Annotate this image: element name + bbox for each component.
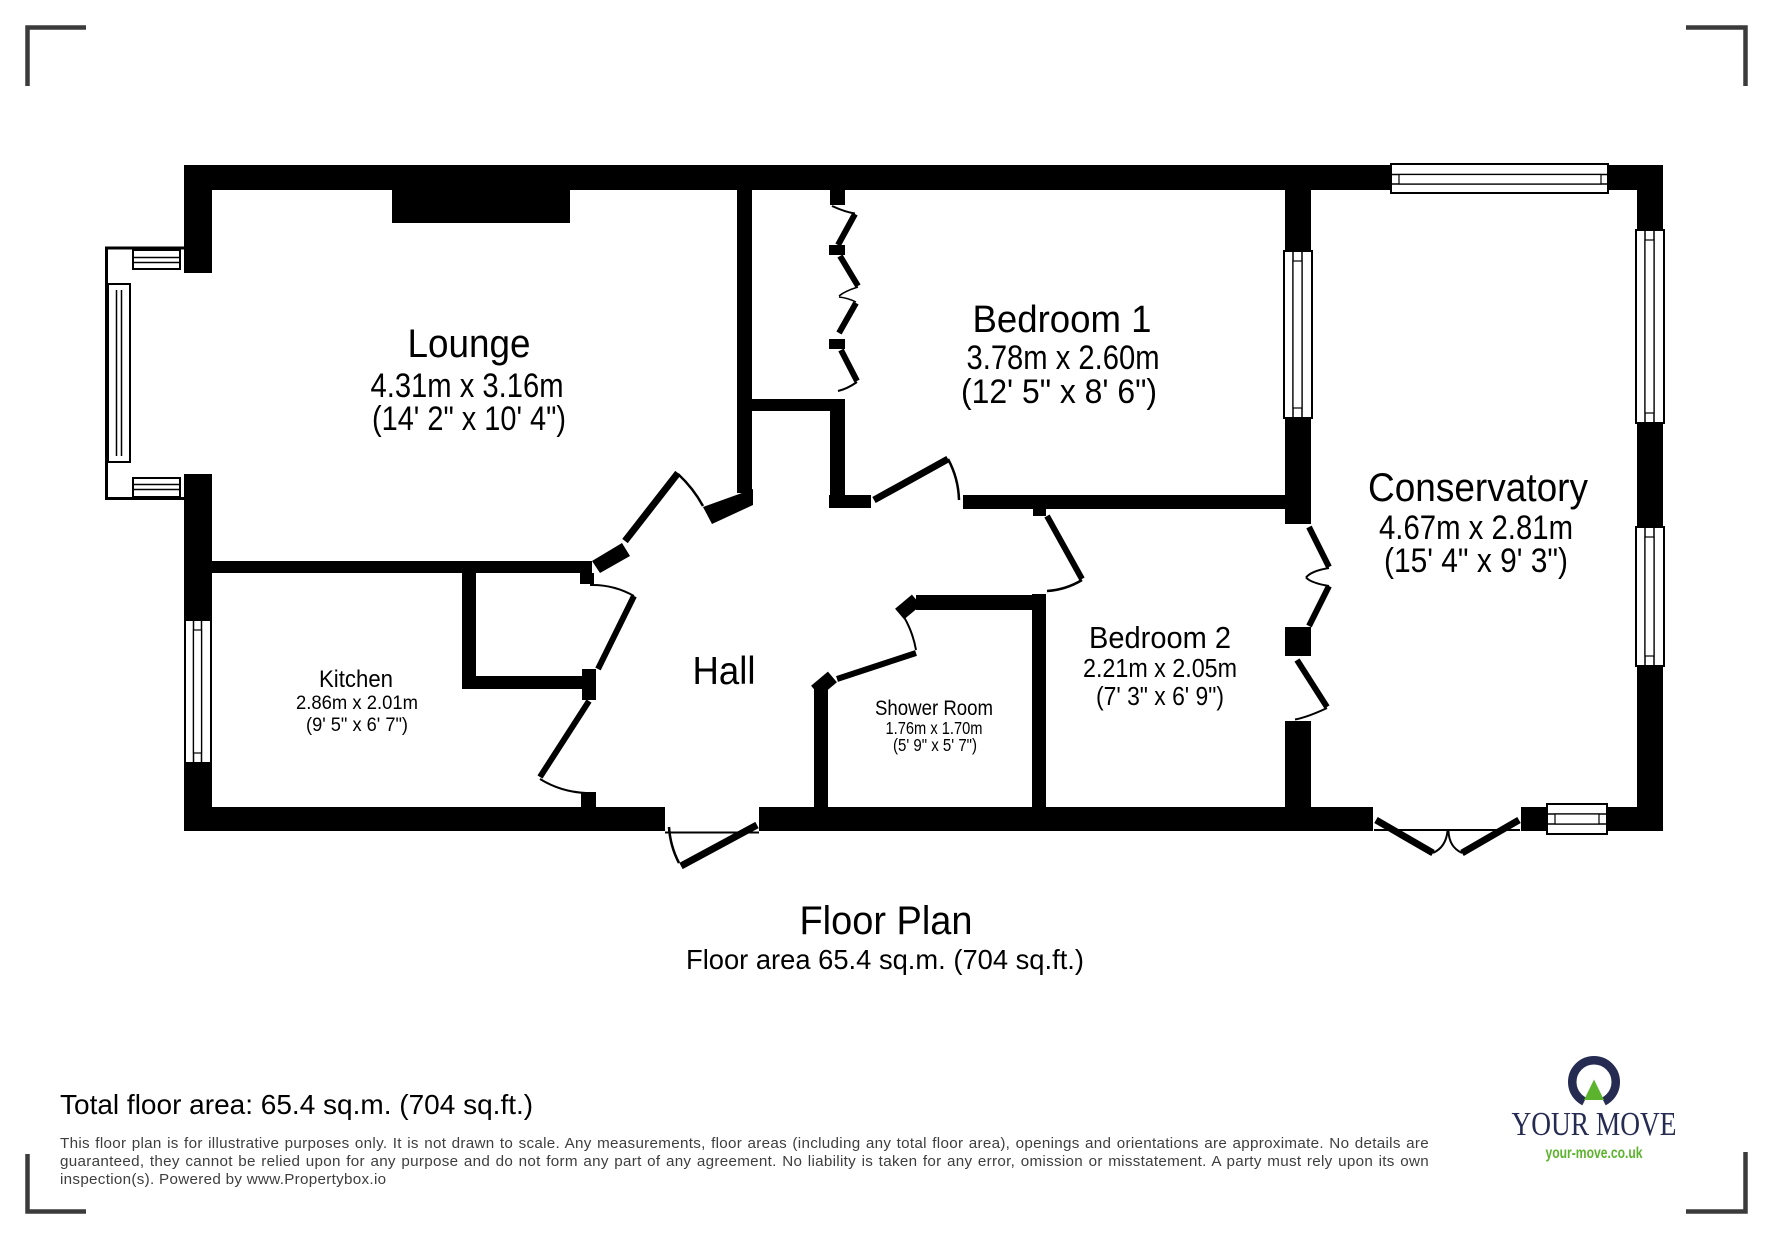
svg-text:Kitchen: Kitchen (319, 666, 393, 693)
svg-text:Shower Room: Shower Room (875, 697, 993, 720)
svg-text:(9' 5" x 6' 7"): (9' 5" x 6' 7") (306, 714, 408, 736)
svg-text:Conservatory: Conservatory (1368, 466, 1588, 510)
svg-text:Hall: Hall (693, 650, 756, 693)
svg-text:(12' 5" x 8' 6"): (12' 5" x 8' 6") (961, 373, 1157, 411)
svg-text:(5' 9" x 5' 7"): (5' 9" x 5' 7") (893, 735, 977, 755)
svg-text:YOUR MOVE: YOUR MOVE (1512, 1106, 1677, 1143)
svg-text:2.21m x 2.05m: 2.21m x 2.05m (1083, 655, 1237, 683)
svg-text:(15' 4" x 9' 3"): (15' 4" x 9' 3") (1384, 542, 1568, 580)
svg-text:(7' 3" x 6' 9"): (7' 3" x 6' 9") (1096, 683, 1224, 711)
svg-text:(14' 2" x 10' 4"): (14' 2" x 10' 4") (372, 400, 566, 438)
svg-text:Bedroom 2: Bedroom 2 (1089, 620, 1231, 655)
svg-text:Floor area 65.4 sq.m. (704 sq.: Floor area 65.4 sq.m. (704 sq.ft.) (686, 944, 1084, 975)
svg-text:2.86m x 2.01m: 2.86m x 2.01m (296, 692, 418, 714)
svg-text:Lounge: Lounge (408, 322, 531, 366)
svg-text:your-move.co.uk: your-move.co.uk (1546, 1145, 1643, 1162)
svg-text:3.78m x 2.60m: 3.78m x 2.60m (967, 339, 1160, 377)
svg-text:Bedroom 1: Bedroom 1 (973, 299, 1152, 341)
svg-text:Floor Plan: Floor Plan (800, 899, 973, 943)
